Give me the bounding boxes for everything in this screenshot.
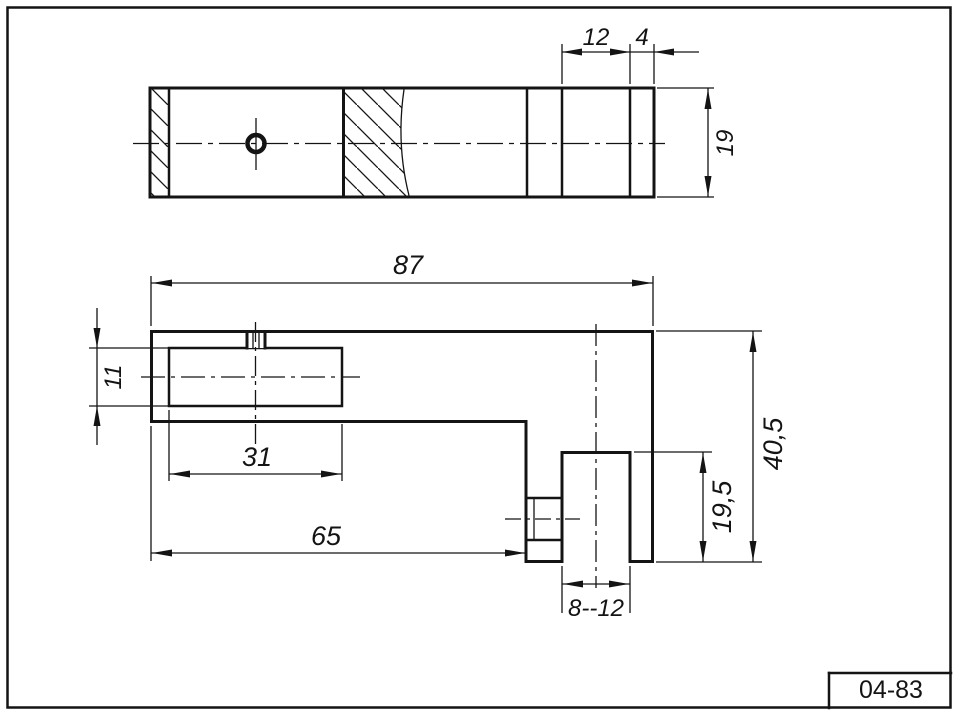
dim-19-label: 19 <box>712 130 739 157</box>
drawing-sheet: 12 4 19 <box>0 0 957 720</box>
technical-drawing: 12 4 19 <box>0 0 957 720</box>
dimension-87: 87 <box>151 250 653 326</box>
dimension-8-12: 8--12 <box>562 566 630 622</box>
front-section-view: 87 11 31 65 <box>89 250 788 622</box>
top-view-section-hatch <box>344 90 409 196</box>
title-block: 04-83 <box>829 673 951 708</box>
dimension-12-and-4: 12 4 <box>562 24 699 84</box>
dim-4-label: 4 <box>635 24 648 51</box>
dimension-65: 65 <box>151 426 525 561</box>
drawing-number: 04-83 <box>859 676 923 704</box>
dimension-19: 19 <box>657 88 739 197</box>
dim-19-5-label: 19,5 <box>707 480 737 534</box>
dim-65-label: 65 <box>311 521 342 551</box>
top-view-left-wall-hatch <box>152 90 169 196</box>
dim-8-12-label: 8--12 <box>568 595 624 622</box>
dim-11-label: 11 <box>100 365 127 390</box>
front-view-outline <box>152 332 653 562</box>
dim-12-label: 12 <box>583 24 610 51</box>
top-view: 12 4 19 <box>133 24 739 197</box>
dim-31-label: 31 <box>242 442 272 472</box>
dim-40-5-label: 40,5 <box>758 417 788 471</box>
dim-87-label: 87 <box>393 250 424 280</box>
